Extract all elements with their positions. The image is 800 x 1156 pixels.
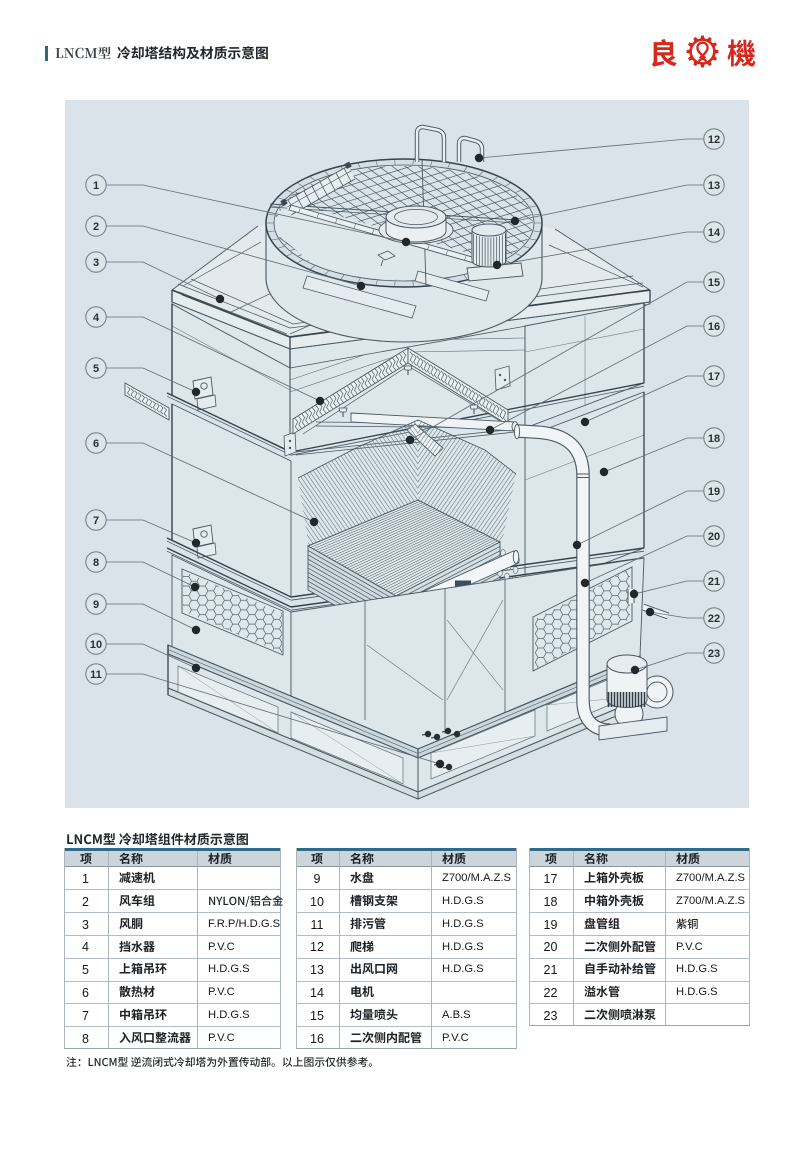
svg-text:10: 10 [90, 639, 102, 651]
svg-text:15: 15 [708, 277, 720, 289]
svg-text:3: 3 [93, 257, 99, 269]
svg-text:20: 20 [708, 531, 720, 543]
svg-text:7: 7 [93, 515, 99, 527]
svg-text:2: 2 [93, 221, 99, 233]
svg-text:12: 12 [708, 134, 720, 146]
svg-text:4: 4 [93, 312, 100, 324]
svg-text:1: 1 [93, 180, 99, 192]
svg-text:5: 5 [93, 363, 99, 375]
svg-text:8: 8 [93, 557, 99, 569]
svg-text:23: 23 [708, 648, 720, 660]
svg-text:17: 17 [708, 371, 720, 383]
svg-text:16: 16 [708, 321, 720, 333]
svg-text:13: 13 [708, 180, 720, 192]
svg-text:22: 22 [708, 613, 720, 625]
svg-text:19: 19 [708, 486, 720, 498]
svg-text:9: 9 [93, 599, 99, 611]
svg-text:18: 18 [708, 433, 720, 445]
svg-text:6: 6 [93, 438, 99, 450]
svg-text:21: 21 [708, 576, 720, 588]
svg-text:11: 11 [90, 669, 102, 681]
svg-text:14: 14 [708, 227, 721, 239]
